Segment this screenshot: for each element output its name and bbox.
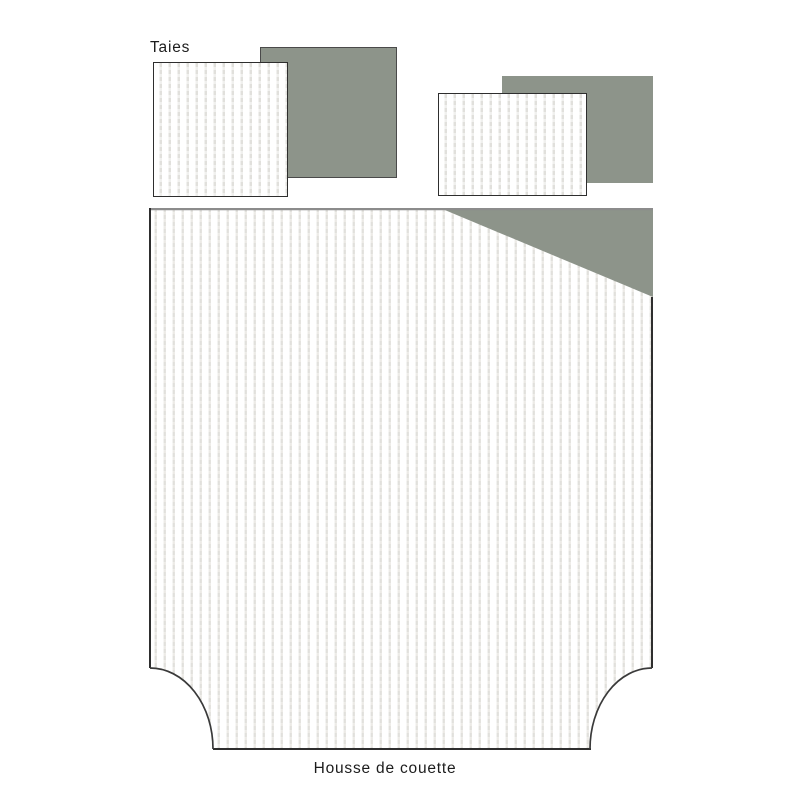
bedding-pattern-sheet: Taies Housse de couette <box>0 0 800 800</box>
duvet-cover-diagram <box>149 208 653 750</box>
pillowcase-front-left <box>153 62 288 197</box>
duvet-front-panel <box>149 208 653 750</box>
pillowcases-section-label: Taies <box>150 39 190 57</box>
pillowcase-front-right <box>438 93 587 196</box>
duvet-section-label: Housse de couette <box>314 760 457 778</box>
